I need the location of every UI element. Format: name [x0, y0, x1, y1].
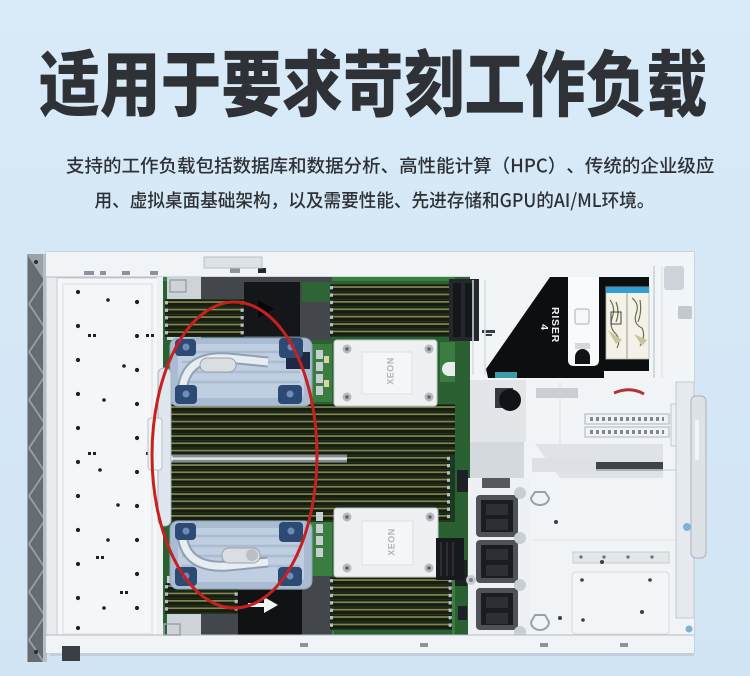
- svg-text:4: 4: [538, 324, 550, 330]
- svg-text:XEON: XEON: [385, 357, 395, 385]
- svg-text:XEON: XEON: [386, 528, 396, 556]
